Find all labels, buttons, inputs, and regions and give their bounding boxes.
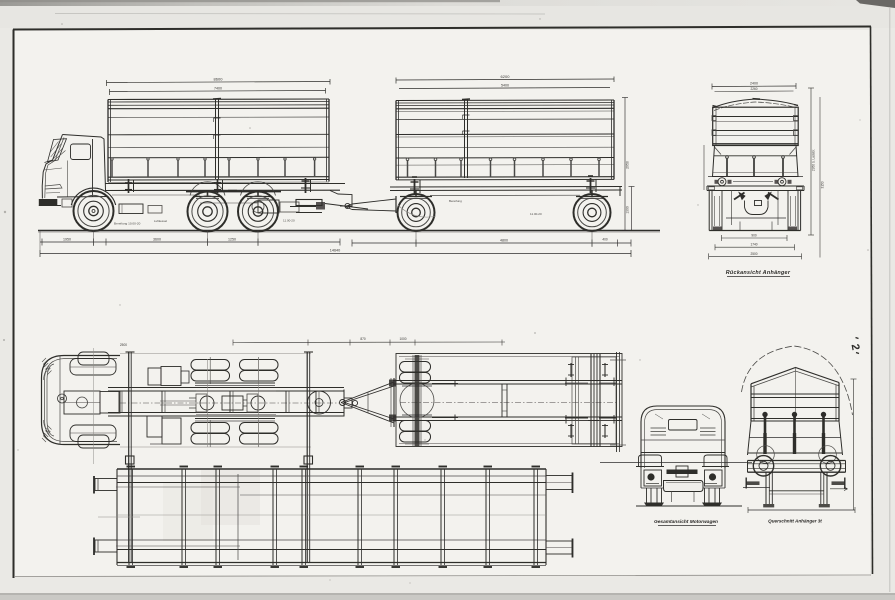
svg-text:Rückansicht Anhänger: Rückansicht Anhänger (726, 270, 791, 276)
svg-text:2950: 2950 (626, 161, 630, 169)
svg-text:Bereifung: Bereifung (449, 199, 462, 203)
svg-text:Gesamtansicht Motorwagen: Gesamtansicht Motorwagen (654, 519, 718, 525)
svg-text:Querschnitt Anhänger 3t: Querschnitt Anhänger 3t (768, 519, 822, 524)
svg-text:900: 900 (751, 234, 757, 238)
svg-text:11.00-20: 11.00-20 (530, 212, 542, 216)
svg-text:2500: 2500 (750, 252, 757, 256)
svg-text:8600: 8600 (214, 77, 224, 82)
svg-text:870: 870 (360, 337, 366, 341)
svg-text:400: 400 (602, 238, 608, 242)
svg-text:Luftkessel: Luftkessel (154, 219, 167, 223)
svg-text:7400: 7400 (214, 87, 222, 91)
svg-text:1950: 1950 (63, 238, 71, 242)
svg-text:2950 ü. Ladebr.: 2950 ü. Ladebr. (812, 149, 816, 171)
svg-text:2500: 2500 (120, 343, 127, 347)
svg-text:5400: 5400 (501, 84, 509, 88)
svg-text:1250: 1250 (228, 238, 236, 242)
svg-text:1000: 1000 (399, 337, 406, 341)
svg-text:3600: 3600 (153, 238, 161, 242)
svg-text:6200: 6200 (501, 74, 511, 79)
svg-text:3150: 3150 (821, 181, 825, 188)
svg-text:2400: 2400 (750, 82, 758, 86)
svg-text:1300: 1300 (626, 206, 630, 214)
svg-text:11.00-20: 11.00-20 (283, 219, 295, 223)
svg-text:14640: 14640 (330, 249, 341, 253)
svg-text:Bereifung 10.00-20: Bereifung 10.00-20 (114, 222, 141, 226)
svg-text:2260: 2260 (750, 87, 757, 91)
svg-text:1740: 1740 (750, 243, 757, 247)
svg-text:4800: 4800 (500, 239, 508, 243)
